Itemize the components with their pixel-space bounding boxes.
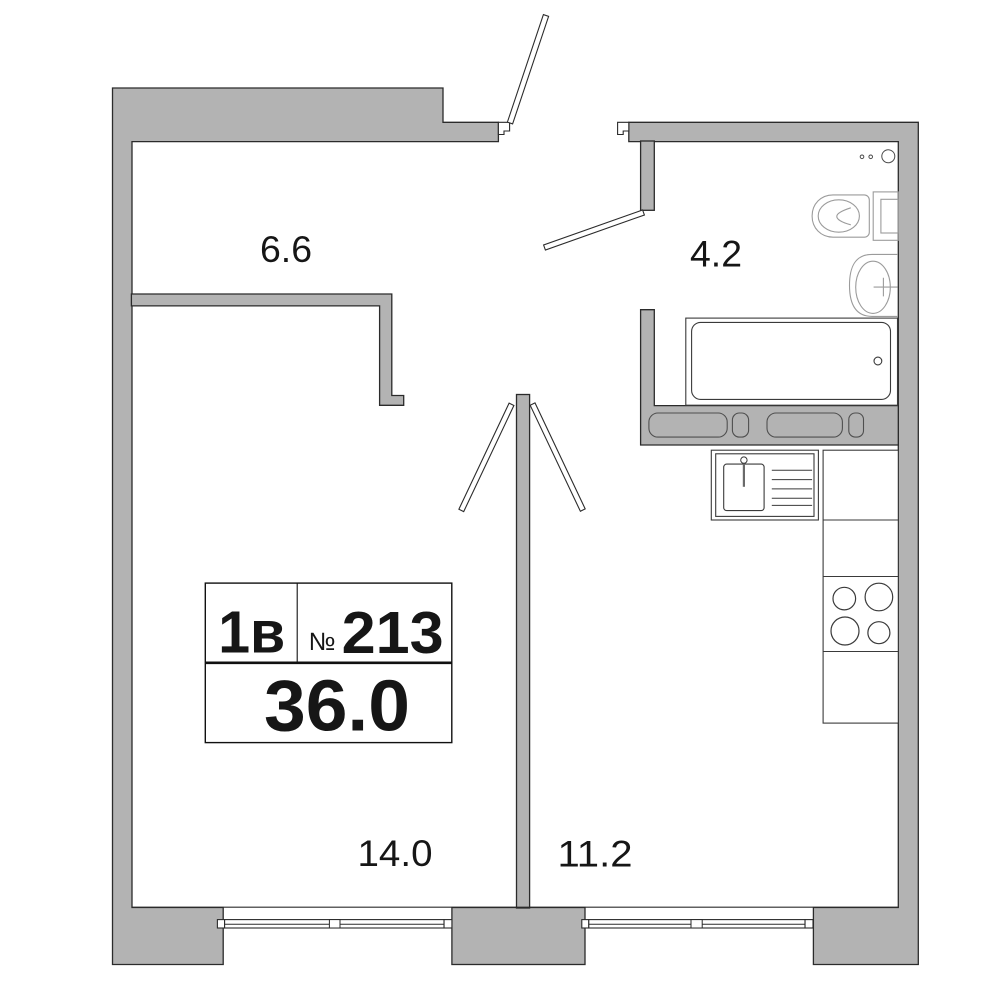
svg-text:4.2: 4.2 <box>690 234 742 275</box>
svg-text:213: 213 <box>342 600 444 666</box>
svg-text:1в: 1в <box>218 600 285 666</box>
svg-text:36.0: 36.0 <box>264 666 410 746</box>
svg-text:14.0: 14.0 <box>358 833 433 874</box>
svg-text:№: № <box>309 628 336 656</box>
svg-text:6.6: 6.6 <box>260 229 312 270</box>
svg-text:11.2: 11.2 <box>558 834 633 875</box>
